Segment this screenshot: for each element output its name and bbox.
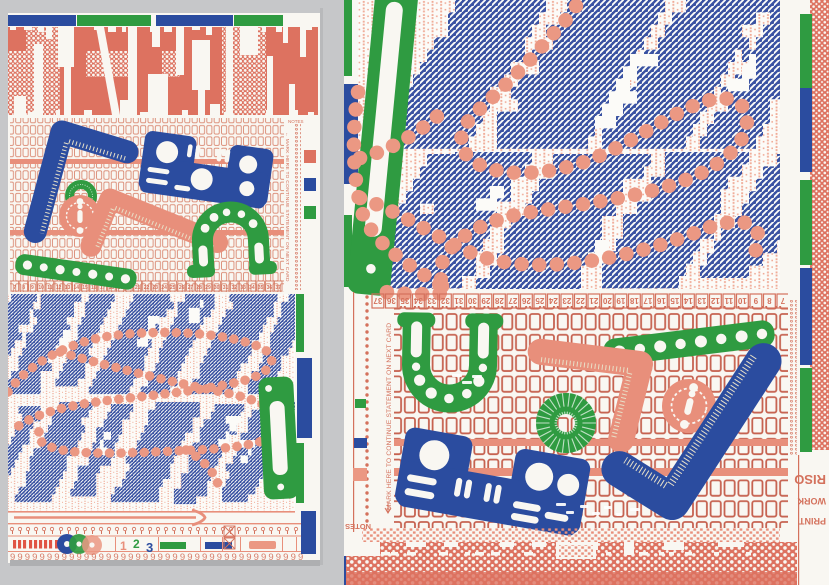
svg-text:21: 21 bbox=[135, 285, 141, 291]
svg-text:9: 9 bbox=[753, 296, 758, 305]
svg-text:17: 17 bbox=[643, 296, 652, 305]
svg-text:25: 25 bbox=[535, 296, 544, 305]
svg-text:33: 33 bbox=[427, 296, 436, 305]
svg-text:10: 10 bbox=[737, 296, 746, 305]
svg-text:11: 11 bbox=[47, 285, 53, 291]
svg-text:WORK: WORK bbox=[797, 496, 826, 506]
svg-text:24: 24 bbox=[161, 285, 167, 291]
svg-text:32: 32 bbox=[232, 285, 238, 291]
svg-text:19: 19 bbox=[616, 296, 625, 305]
svg-text:35: 35 bbox=[258, 285, 264, 291]
svg-text:21: 21 bbox=[589, 296, 598, 305]
svg-text:9: 9 bbox=[31, 285, 34, 291]
svg-text:29: 29 bbox=[481, 296, 490, 305]
svg-text:31: 31 bbox=[223, 285, 229, 291]
svg-text:36: 36 bbox=[386, 296, 395, 305]
svg-text:10: 10 bbox=[38, 285, 44, 291]
svg-text:36: 36 bbox=[267, 285, 273, 291]
svg-text:14: 14 bbox=[74, 285, 80, 291]
svg-text:34: 34 bbox=[413, 296, 422, 305]
svg-text:26: 26 bbox=[521, 296, 530, 305]
svg-text:13: 13 bbox=[65, 285, 71, 291]
svg-text:12: 12 bbox=[56, 285, 62, 291]
svg-text:18: 18 bbox=[629, 296, 638, 305]
svg-text:32: 32 bbox=[440, 296, 449, 305]
svg-text:33: 33 bbox=[240, 285, 246, 291]
svg-text:26: 26 bbox=[179, 285, 185, 291]
svg-text:20: 20 bbox=[602, 296, 611, 305]
svg-text:2: 2 bbox=[133, 537, 140, 551]
svg-text:29: 29 bbox=[205, 285, 211, 291]
svg-text:16: 16 bbox=[91, 285, 97, 291]
svg-text:23: 23 bbox=[153, 285, 159, 291]
svg-text:31: 31 bbox=[454, 296, 463, 305]
svg-text:8: 8 bbox=[767, 296, 772, 305]
svg-text:27: 27 bbox=[508, 296, 517, 305]
svg-text:15: 15 bbox=[670, 296, 679, 305]
svg-text:15: 15 bbox=[82, 285, 88, 291]
svg-text:28: 28 bbox=[494, 296, 503, 305]
svg-text:PRINT: PRINT bbox=[798, 516, 826, 526]
svg-text:25: 25 bbox=[170, 285, 176, 291]
svg-text:22: 22 bbox=[575, 296, 584, 305]
svg-text:24: 24 bbox=[548, 296, 557, 305]
svg-text:7: 7 bbox=[780, 296, 785, 305]
svg-text:8: 8 bbox=[22, 285, 25, 291]
svg-text:13: 13 bbox=[697, 296, 706, 305]
svg-text:← MARK HERE TO CONTINUE STATEM: ← MARK HERE TO CONTINUE STATEMENT ON NEX… bbox=[284, 132, 290, 282]
svg-text:35: 35 bbox=[400, 296, 409, 305]
svg-text:7: 7 bbox=[13, 285, 16, 291]
svg-text:22: 22 bbox=[144, 285, 150, 291]
svg-text:30: 30 bbox=[214, 285, 220, 291]
svg-text:MARK HERE TO CONTINUE STATEMEN: MARK HERE TO CONTINUE STATEMENT ON NEXT … bbox=[386, 323, 393, 510]
svg-text:37: 37 bbox=[275, 285, 281, 291]
svg-text:30: 30 bbox=[467, 296, 476, 305]
svg-text:37: 37 bbox=[373, 296, 382, 305]
svg-text:12: 12 bbox=[710, 296, 719, 305]
svg-text:27: 27 bbox=[188, 285, 194, 291]
svg-text:16: 16 bbox=[656, 296, 665, 305]
svg-text:14: 14 bbox=[683, 296, 692, 305]
svg-text:999999999999999999999999999999: 9999999999999999999999999999999999999999 bbox=[10, 552, 305, 563]
svg-text:1: 1 bbox=[120, 539, 127, 553]
svg-text:34: 34 bbox=[249, 285, 255, 291]
svg-text:28: 28 bbox=[196, 285, 202, 291]
svg-text:11: 11 bbox=[724, 296, 733, 305]
svg-text:23: 23 bbox=[562, 296, 571, 305]
svg-text:NOTES: NOTES bbox=[288, 119, 304, 124]
